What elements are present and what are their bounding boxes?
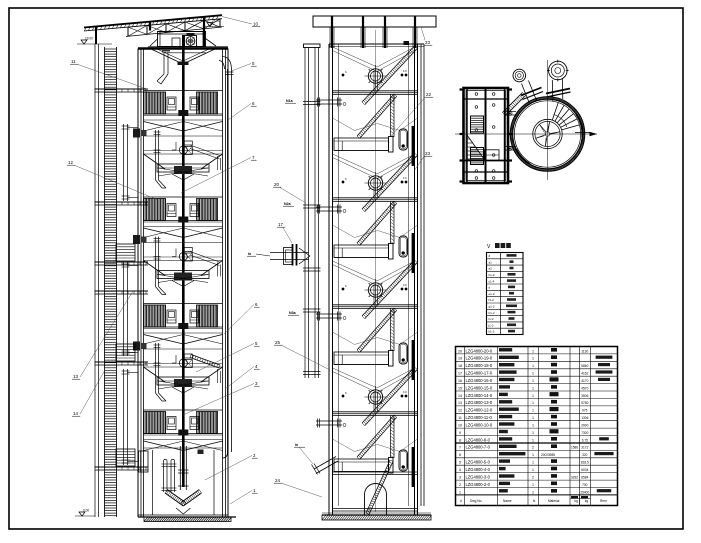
svg-text:3: 3: [459, 475, 461, 479]
svg-text:i1-2: i1-2: [489, 317, 494, 321]
svg-text:18: 18: [458, 364, 462, 368]
svg-text:b b: b b: [403, 283, 407, 287]
svg-text:730: 730: [582, 483, 588, 487]
svg-text:b b: b b: [403, 176, 407, 180]
svg-text:20: 20: [274, 182, 280, 187]
svg-text:9: 9: [459, 431, 461, 435]
svg-text:25: 25: [275, 340, 281, 345]
svg-text:k1-2: k1-2: [489, 330, 495, 334]
svg-text:22: 22: [426, 92, 432, 97]
svg-text:13: 13: [458, 401, 462, 405]
svg-text:LZG4800-18-0: LZG4800-18-0: [466, 363, 493, 368]
svg-text:2: 2: [459, 483, 461, 487]
svg-text:0.00: 0.00: [83, 509, 89, 513]
svg-text:LZG4800-8-0: LZG4800-8-0: [466, 437, 491, 442]
svg-text:11: 11: [458, 416, 462, 420]
svg-text:6584: 6584: [581, 475, 588, 479]
svg-text:14: 14: [73, 411, 79, 416]
svg-text:1: 1: [532, 424, 534, 428]
svg-text:LZG4800-3-0: LZG4800-3-0: [466, 474, 491, 479]
svg-text:b1-2: b1-2: [489, 273, 495, 277]
svg-text:b b: b b: [403, 69, 407, 73]
svg-text:1: 1: [532, 379, 534, 383]
svg-text:19.00: 19.00: [85, 37, 93, 41]
svg-text:11: 11: [71, 59, 76, 64]
svg-text:2900: 2900: [581, 424, 588, 428]
svg-text:1: 1: [532, 401, 534, 405]
svg-text:Material: Material: [548, 499, 560, 503]
svg-text:1: 1: [532, 483, 534, 487]
svg-text:1: 1: [532, 490, 534, 494]
svg-text:kg: kg: [575, 499, 579, 503]
svg-text:4570: 4570: [581, 386, 588, 390]
svg-text:320: 320: [582, 453, 588, 457]
svg-text:4: 4: [459, 468, 461, 472]
svg-text:23: 23: [425, 151, 431, 156]
svg-text:2: 2: [532, 446, 534, 450]
svg-text:975: 975: [582, 409, 588, 413]
svg-text:kg: kg: [585, 499, 589, 503]
svg-text:1: 1: [532, 431, 534, 435]
svg-text:17: 17: [278, 222, 284, 227]
svg-text:N2a: N2a: [284, 202, 292, 206]
svg-text:N3a: N3a: [289, 311, 297, 315]
svg-text:12: 12: [68, 160, 74, 165]
svg-text:5780: 5780: [581, 401, 588, 405]
svg-text:c1-4: c1-4: [489, 279, 495, 283]
svg-text:In: In: [248, 252, 251, 256]
svg-text:5: 5: [459, 461, 461, 465]
svg-text:8: 8: [459, 438, 461, 442]
svg-text:1: 1: [532, 438, 534, 442]
svg-text:j1-2: j1-2: [488, 323, 494, 327]
svg-text:4162: 4162: [581, 372, 588, 376]
svg-text:h1-2: h1-2: [489, 311, 495, 315]
svg-text:24: 24: [275, 478, 281, 483]
svg-text:10: 10: [458, 424, 462, 428]
svg-text:3172: 3172: [581, 446, 588, 450]
svg-text:10: 10: [253, 22, 259, 27]
svg-text:12: 12: [458, 409, 462, 413]
svg-text:6.75: 6.75: [582, 438, 588, 442]
svg-text:1: 1: [532, 416, 534, 420]
svg-text:Name: Name: [503, 499, 512, 503]
svg-text:LZG4800-20-0: LZG4800-20-0: [466, 348, 493, 353]
svg-text:20G/3985: 20G/3985: [541, 453, 555, 457]
svg-text:N1a: N1a: [286, 99, 294, 103]
svg-text:3292: 3292: [571, 475, 578, 479]
svg-text:f1-2: f1-2: [489, 298, 495, 302]
svg-text:a2: a2: [489, 267, 493, 271]
svg-text:7: 7: [459, 446, 461, 450]
svg-text:1: 1: [532, 357, 534, 361]
svg-text:LZG4800-7-0: LZG4800-7-0: [466, 445, 491, 450]
svg-text:818.5: 818.5: [581, 461, 589, 465]
svg-text:LZG4800-16-0: LZG4800-16-0: [466, 378, 493, 383]
svg-text:5860: 5860: [581, 364, 588, 368]
svg-text:1: 1: [532, 394, 534, 398]
svg-text:e1-2: e1-2: [489, 292, 495, 296]
svg-text:LZG4800-4-0: LZG4800-4-0: [466, 467, 491, 472]
svg-text:1: 1: [532, 461, 534, 465]
svg-text:LZG4800-19-0: LZG4800-19-0: [466, 356, 493, 361]
svg-text:14: 14: [458, 394, 462, 398]
svg-text:7300: 7300: [581, 431, 588, 435]
svg-text:LZG4800-12-0: LZG4800-12-0: [466, 408, 493, 413]
svg-text:a1: a1: [489, 260, 493, 264]
svg-text:Rem: Rem: [600, 499, 607, 503]
svg-text:6034: 6034: [581, 468, 588, 472]
svg-text:LZG4800-14-0: LZG4800-14-0: [466, 393, 493, 398]
svg-text:LZG4800-2-0: LZG4800-2-0: [466, 482, 491, 487]
svg-text:23: 23: [425, 40, 431, 45]
svg-text:LZG4800-13-0: LZG4800-13-0: [466, 400, 493, 405]
svg-text:g1-2: g1-2: [489, 305, 495, 309]
svg-text:LZG4800-11-0: LZG4800-11-0: [466, 415, 493, 420]
svg-text:13: 13: [73, 374, 79, 379]
svg-text:1: 1: [532, 386, 534, 390]
svg-text:19: 19: [458, 357, 462, 361]
svg-text:2: 2: [532, 475, 534, 479]
svg-text:1: 1: [532, 453, 534, 457]
svg-text:24.00: 24.00: [212, 19, 220, 23]
svg-text:1130: 1130: [581, 349, 588, 353]
svg-text:25400: 25400: [580, 490, 589, 494]
svg-text:1306: 1306: [581, 416, 588, 420]
svg-text:In: In: [295, 443, 298, 447]
svg-text:1: 1: [459, 490, 461, 494]
svg-text:LZG4800-15-0: LZG4800-15-0: [466, 385, 493, 390]
svg-text:1: 1: [532, 409, 534, 413]
svg-text:1: 1: [532, 468, 534, 472]
svg-text:4170: 4170: [581, 379, 588, 383]
svg-text:6: 6: [459, 453, 461, 457]
svg-text:#: #: [460, 499, 462, 503]
svg-text:3506: 3506: [581, 394, 588, 398]
svg-text:LZG4800-5-0: LZG4800-5-0: [466, 460, 491, 465]
svg-text:LZG4800-17-0: LZG4800-17-0: [466, 371, 493, 376]
svg-text:1: 1: [532, 364, 534, 368]
svg-text:1: 1: [532, 349, 534, 353]
svg-text:16: 16: [458, 379, 462, 383]
svg-text:17: 17: [458, 372, 462, 376]
svg-text:20: 20: [458, 349, 462, 353]
svg-text:b b: b b: [403, 390, 407, 394]
svg-text:Dwg No.: Dwg No.: [470, 499, 482, 503]
svg-text:15: 15: [458, 386, 462, 390]
svg-text:LZG4800-10-0: LZG4800-10-0: [466, 423, 493, 428]
svg-text:1: 1: [532, 372, 534, 376]
svg-text:1586: 1586: [571, 446, 578, 450]
